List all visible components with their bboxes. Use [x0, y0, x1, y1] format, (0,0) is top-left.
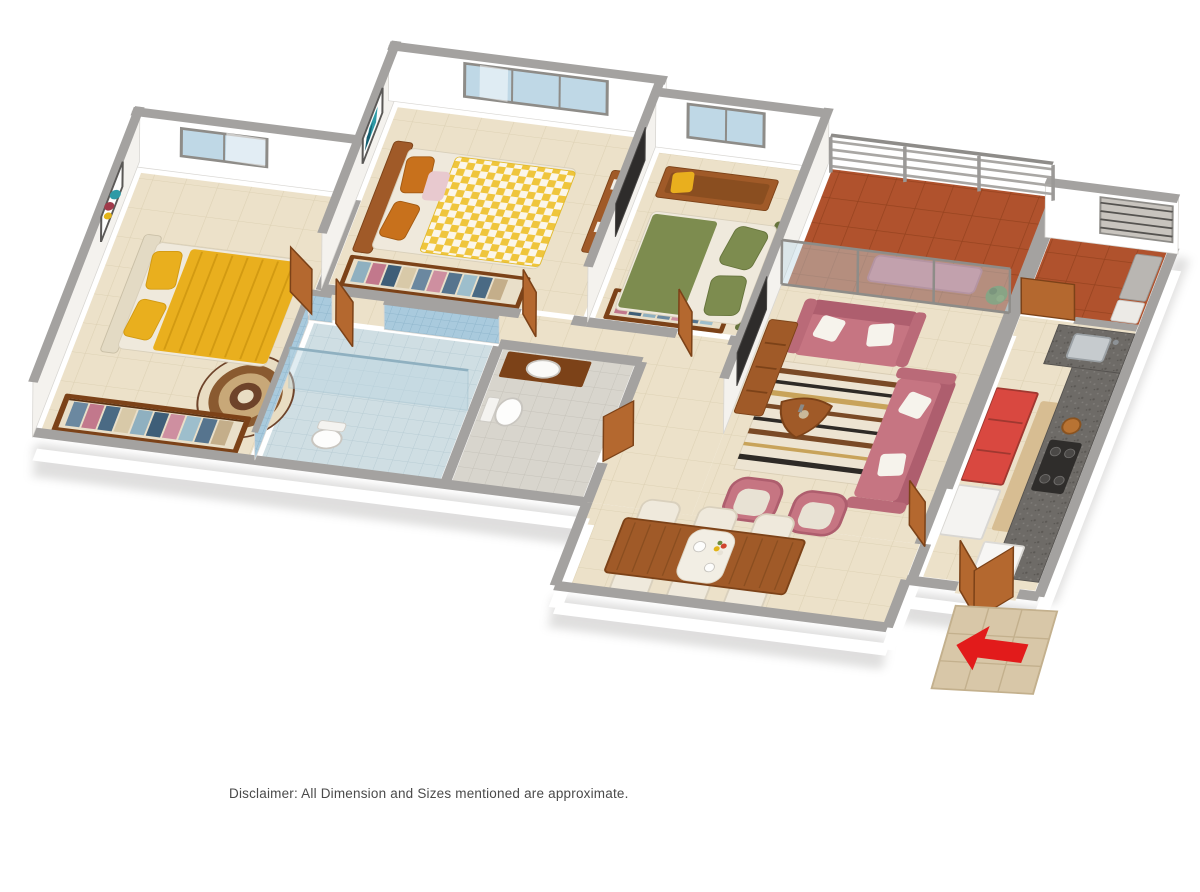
steel-sink	[1066, 334, 1111, 362]
bench-pillow-yellow	[670, 172, 695, 194]
floor-plan-3d-render	[0, 0, 1200, 892]
disclaimer-text: Disclaimer: All Dimension and Sizes ment…	[229, 786, 629, 801]
floor-plan-page: Disclaimer: All Dimension and Sizes ment…	[0, 0, 1200, 892]
white-cushion	[866, 323, 895, 347]
white-cushion	[877, 453, 907, 476]
